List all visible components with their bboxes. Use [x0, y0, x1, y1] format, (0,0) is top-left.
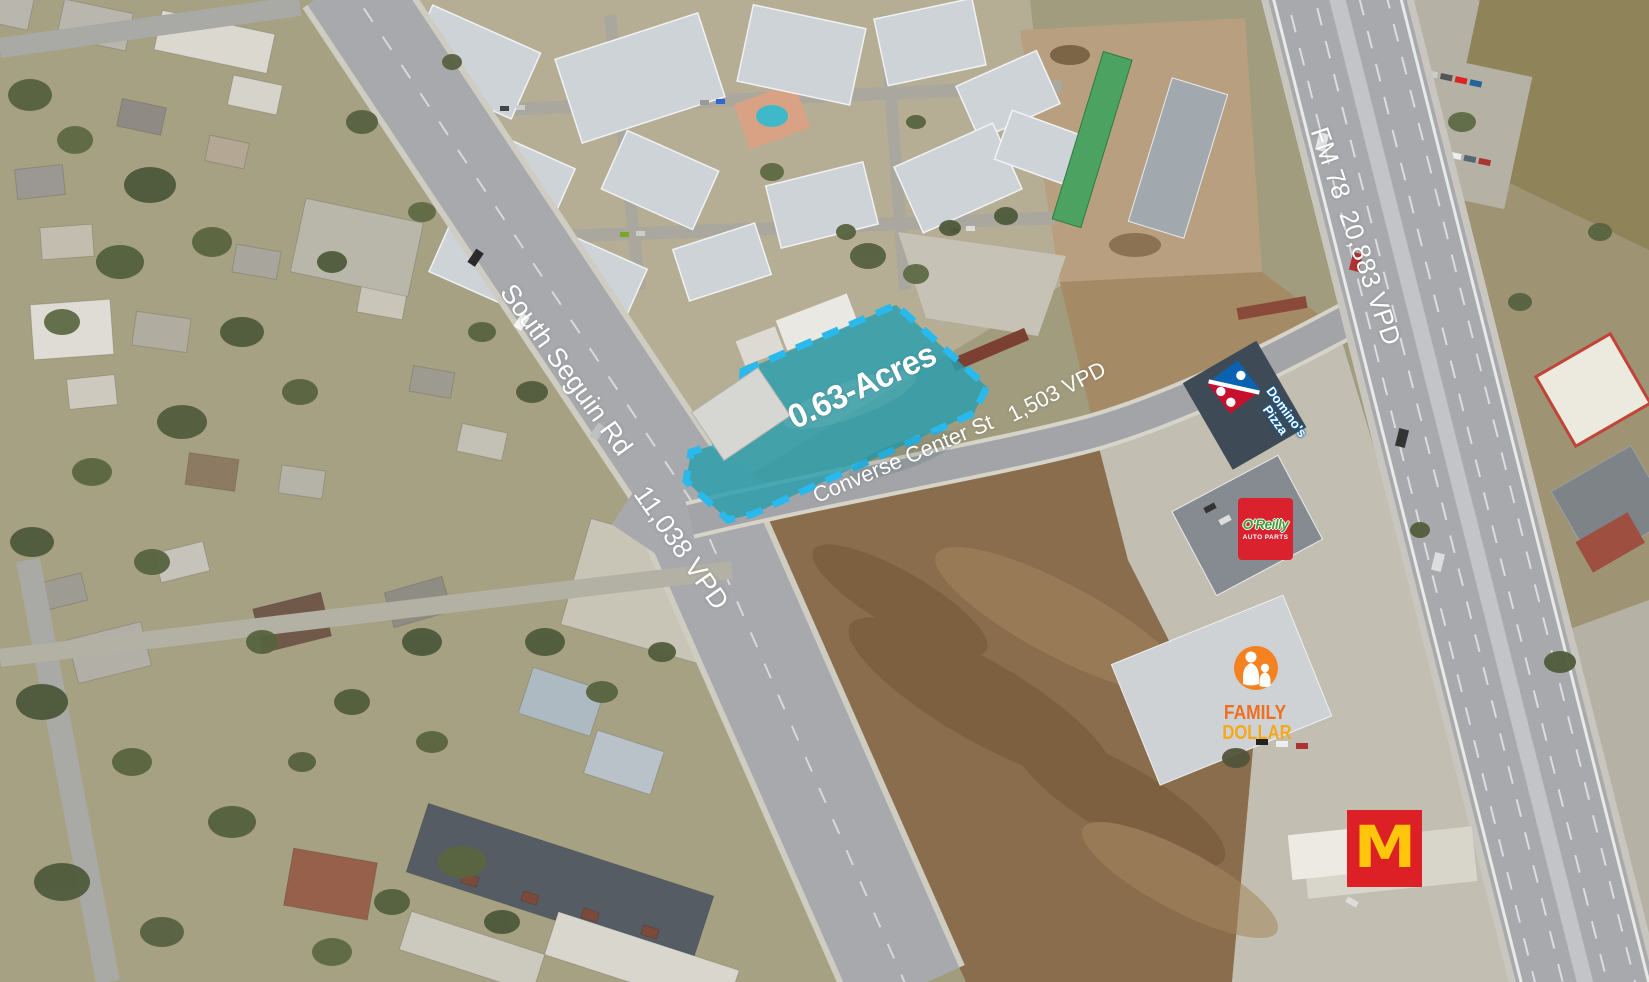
oreilly-auto-parts-logo: O'Reilly AUTO PARTS [1238, 498, 1293, 560]
family-figures-icon [1233, 645, 1279, 691]
oreilly-subtitle: AUTO PARTS [1243, 534, 1289, 541]
aerial-site-map: South Seguin Rd 11,038 VPD 0.63-Acres Co… [0, 0, 1649, 982]
golden-arches-icon: M [1353, 818, 1415, 876]
dominos-pizza-logo: Domino's Pizza [1205, 358, 1315, 458]
oreilly-name: O'Reilly [1243, 517, 1289, 532]
family-dollar-logo: FAMILY DOLLAR [1205, 645, 1315, 740]
swimming-pool [756, 105, 788, 127]
mcdonalds-logo: M [1347, 810, 1422, 887]
family-dollar-word2: DOLLAR [1211, 722, 1302, 745]
